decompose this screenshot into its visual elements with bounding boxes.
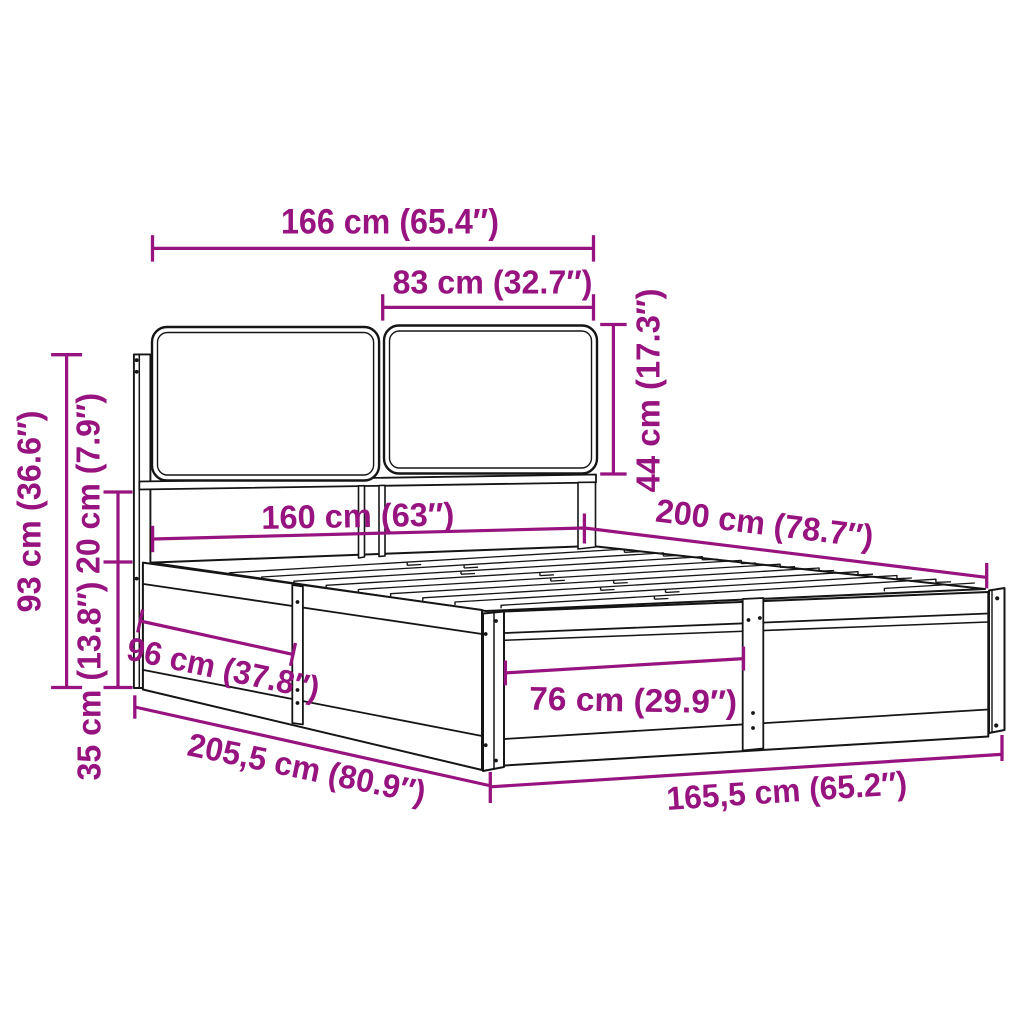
svg-text:44 cm (17.3″): 44 cm (17.3″) — [630, 288, 667, 492]
svg-text:93 cm (36.6″): 93 cm (36.6″) — [11, 411, 48, 613]
svg-text:160 cm (63″): 160 cm (63″) — [261, 496, 455, 536]
svg-text:166 cm (65.4″): 166 cm (65.4″) — [281, 202, 499, 241]
svg-text:20 cm (7.9″): 20 cm (7.9″) — [70, 393, 107, 574]
svg-text:35 cm (13.8″): 35 cm (13.8″) — [71, 582, 108, 781]
svg-text:83 cm (32.7″): 83 cm (32.7″) — [393, 264, 593, 301]
svg-text:76 cm (29.9″): 76 cm (29.9″) — [529, 680, 738, 721]
